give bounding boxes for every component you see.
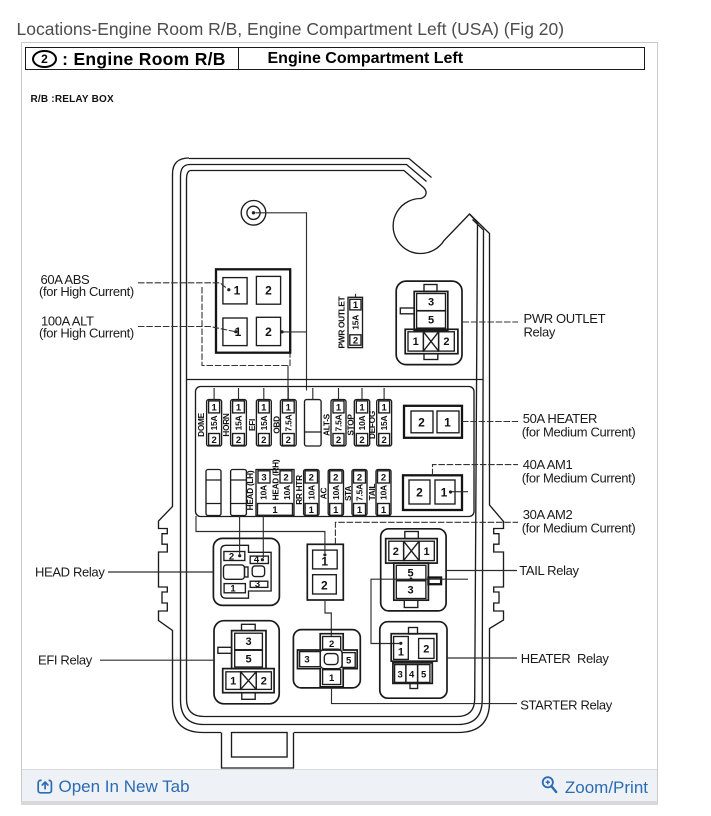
svg-text:15A: 15A — [350, 315, 360, 330]
svg-text:EFI: EFI — [247, 419, 257, 431]
svg-text:2: 2 — [381, 472, 386, 483]
svg-text:TAIL: TAIL — [367, 483, 377, 500]
svg-text:1: 1 — [359, 402, 365, 413]
svg-text:7.5A: 7.5A — [334, 414, 344, 431]
svg-text:(for Medium Current): (for Medium Current) — [522, 425, 636, 440]
svg-text:2: 2 — [357, 472, 362, 483]
svg-text:TAIL Relay: TAIL Relay — [519, 563, 579, 578]
svg-text:15A: 15A — [379, 415, 389, 430]
svg-text:15A: 15A — [234, 415, 244, 430]
svg-text:1: 1 — [413, 336, 419, 348]
svg-text:3: 3 — [428, 297, 434, 309]
svg-text:1: 1 — [424, 546, 430, 558]
svg-text:2: 2 — [336, 435, 341, 446]
svg-text:2: 2 — [283, 472, 288, 483]
svg-text:STOP: STOP — [346, 414, 356, 436]
svg-text:10A: 10A — [331, 485, 341, 500]
svg-text:HEATER Relay: HEATER Relay — [521, 651, 610, 666]
svg-text:1: 1 — [286, 402, 292, 413]
svg-text:HORN: HORN — [221, 413, 231, 437]
svg-text:1: 1 — [381, 505, 387, 516]
svg-text:5: 5 — [421, 670, 427, 681]
svg-text:1: 1 — [261, 402, 267, 413]
svg-text:1: 1 — [398, 647, 404, 659]
svg-text:10A: 10A — [357, 415, 367, 430]
svg-text:2: 2 — [423, 644, 429, 656]
svg-text:10A: 10A — [306, 485, 316, 500]
svg-text:(for High Current): (for High Current) — [39, 284, 134, 299]
svg-text:1: 1 — [236, 402, 242, 413]
svg-text:10A: 10A — [379, 485, 389, 500]
svg-text:2: 2 — [265, 325, 272, 339]
svg-text:3: 3 — [255, 579, 260, 590]
svg-text:ALT-S: ALT-S — [322, 413, 332, 436]
svg-text:OBD: OBD — [272, 416, 282, 434]
svg-text:2: 2 — [329, 639, 334, 650]
svg-text:1: 1 — [441, 486, 448, 500]
svg-text:2: 2 — [309, 472, 314, 483]
svg-text:2: 2 — [381, 435, 386, 446]
svg-text:1: 1 — [309, 505, 315, 516]
svg-text:STA: STA — [343, 486, 353, 501]
svg-text:AC: AC — [319, 488, 329, 500]
svg-text:HEAD (LH): HEAD (LH) — [245, 470, 255, 510]
svg-text:Relay: Relay — [524, 325, 556, 340]
svg-text:7.5A: 7.5A — [283, 414, 293, 431]
svg-text:DEFOG: DEFOG — [367, 411, 377, 439]
svg-text:(for Medium Current): (for Medium Current) — [522, 471, 636, 486]
svg-text:10A: 10A — [259, 485, 269, 500]
svg-text:2: 2 — [333, 472, 338, 483]
svg-text:2: 2 — [321, 579, 328, 593]
svg-text:(for Medium Current): (for Medium Current) — [522, 521, 636, 536]
svg-text:(for High Current): (for High Current) — [39, 326, 134, 341]
svg-text:1: 1 — [329, 673, 335, 684]
svg-text:1: 1 — [336, 402, 342, 413]
svg-text:2: 2 — [236, 435, 241, 446]
svg-text:5: 5 — [245, 654, 251, 666]
svg-text:1: 1 — [321, 555, 328, 569]
svg-text:3: 3 — [245, 636, 251, 648]
svg-text:DOME: DOME — [196, 412, 206, 436]
svg-text:7.5A: 7.5A — [355, 484, 365, 501]
svg-text:5: 5 — [346, 656, 352, 667]
svg-text:EFI Relay: EFI Relay — [38, 653, 93, 668]
svg-text:2: 2 — [211, 435, 216, 446]
svg-text:2: 2 — [265, 284, 272, 298]
svg-text:STARTER Relay: STARTER Relay — [520, 698, 613, 713]
svg-text:RR HTR: RR HTR — [294, 475, 304, 505]
svg-text:PWR OUTLET: PWR OUTLET — [337, 296, 347, 348]
svg-text:10A: 10A — [282, 485, 292, 500]
svg-text:1: 1 — [333, 505, 339, 516]
svg-text:2: 2 — [418, 415, 425, 429]
svg-text:2: 2 — [393, 546, 399, 558]
svg-text:4: 4 — [254, 555, 260, 566]
svg-text:1: 1 — [381, 402, 387, 413]
svg-text:2: 2 — [359, 435, 364, 446]
svg-text:2: 2 — [353, 335, 358, 346]
svg-text:2: 2 — [286, 435, 291, 446]
svg-text:5: 5 — [428, 315, 434, 327]
svg-text:4: 4 — [409, 670, 415, 681]
svg-text:15A: 15A — [259, 415, 269, 430]
svg-text:HEAD (RH): HEAD (RH) — [271, 459, 281, 500]
svg-text:3: 3 — [398, 670, 403, 681]
svg-text:3: 3 — [261, 472, 266, 483]
svg-text:1: 1 — [211, 402, 217, 413]
svg-text:2: 2 — [261, 435, 266, 446]
svg-text:15A: 15A — [209, 415, 219, 430]
svg-text:2: 2 — [261, 676, 267, 688]
svg-text:2: 2 — [416, 486, 423, 500]
svg-text:2: 2 — [229, 552, 234, 563]
svg-text:3: 3 — [304, 655, 309, 666]
svg-text:1: 1 — [272, 505, 278, 516]
svg-text:3: 3 — [407, 585, 413, 597]
svg-text:HEAD Relay: HEAD Relay — [35, 565, 105, 580]
svg-text:1: 1 — [234, 284, 241, 298]
svg-text:2: 2 — [443, 336, 449, 348]
svg-text:1: 1 — [444, 415, 451, 429]
svg-text:1: 1 — [230, 584, 236, 595]
svg-text:1: 1 — [230, 676, 236, 688]
svg-text:1: 1 — [357, 505, 363, 516]
svg-text:1: 1 — [353, 300, 359, 311]
